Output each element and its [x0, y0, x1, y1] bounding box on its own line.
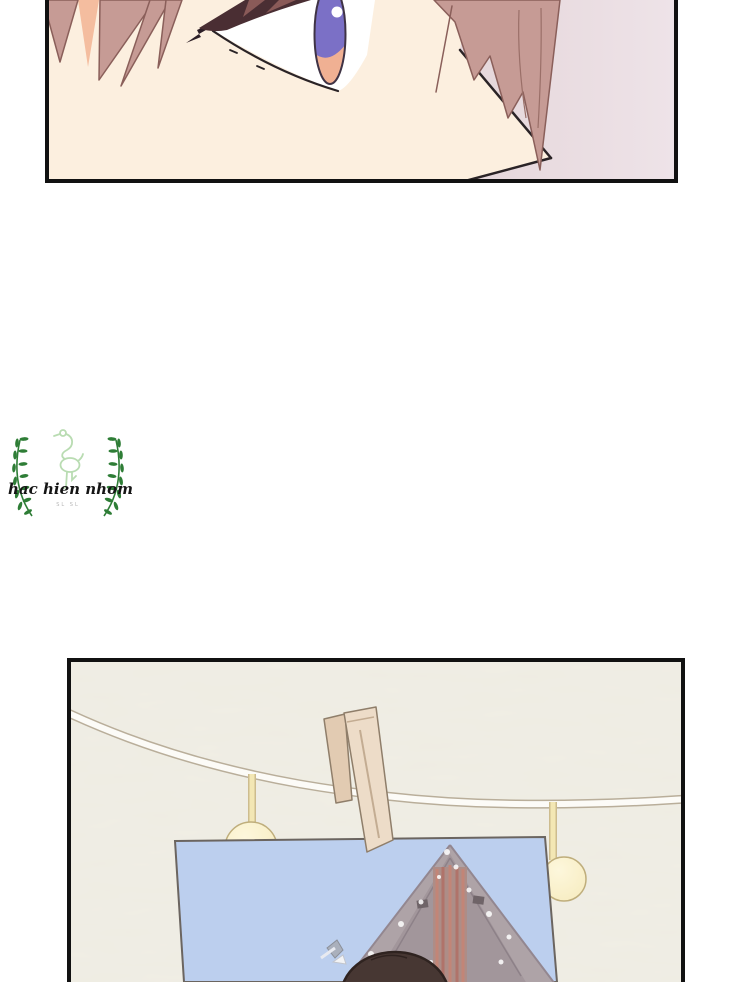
hanging-photo: [175, 837, 557, 982]
top-panel: [45, 0, 678, 183]
watermark-graphics: [8, 424, 128, 530]
watermark-subtext: SL SL: [8, 502, 128, 508]
eye-closeup-artwork: [49, 0, 674, 179]
watermark-title: hac hien nhom: [8, 480, 128, 498]
bottom-panel: [67, 658, 685, 982]
comic-page: { "watermark": { "title": "hac hien nhom…: [0, 0, 740, 982]
photo-clothesline-artwork: [71, 662, 681, 982]
translator-watermark: hac hien nhom SL SL: [8, 424, 128, 530]
eye-highlight: [332, 7, 343, 18]
